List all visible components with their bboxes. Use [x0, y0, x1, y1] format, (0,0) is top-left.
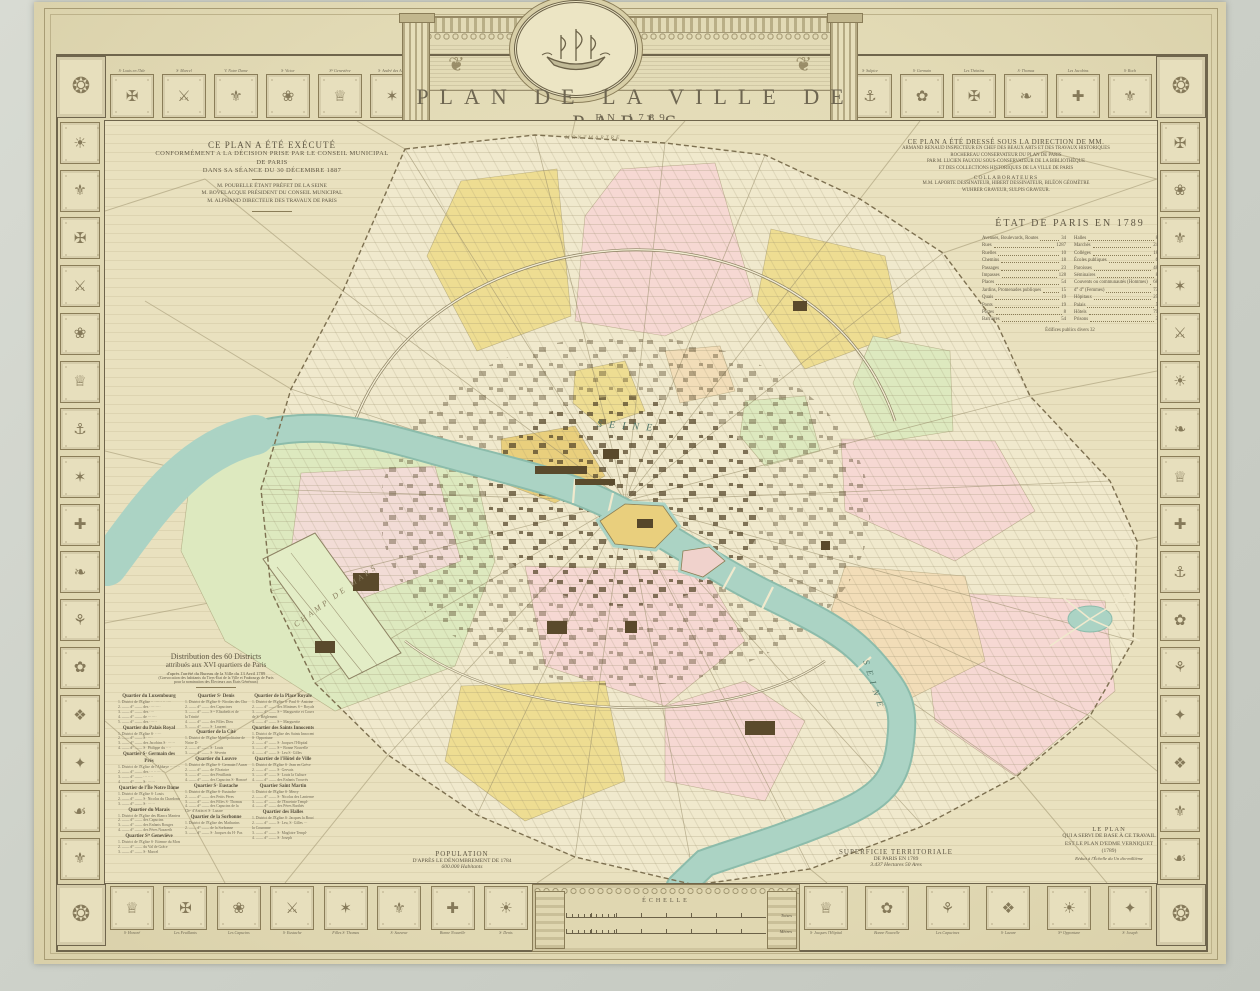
parish-label: S· Jacques l'Hôpital [810, 930, 842, 936]
heraldic-emblem-icon: ⚜ [392, 901, 405, 916]
heraldic-emblem-icon: ✠ [126, 89, 139, 104]
border-strip-bottom-left: ♕ S· Honoré ✠ Les Feuillants ❀ Les Capuc… [110, 886, 528, 944]
emblem-panel: ♕ [60, 361, 100, 403]
table-row: Ponts 19 [982, 302, 1066, 309]
heraldic-emblem-icon: ✶ [1174, 279, 1187, 294]
leader-dots [996, 279, 1059, 285]
row-value: 54 [1061, 316, 1066, 323]
row-label: Jardins, Promenades publiques [982, 287, 1041, 294]
note-line: M. POUBELLE ÉTANT PRÉFET DE LA SEINE [128, 183, 416, 191]
execution-note: CE PLAN A ÉTÉ EXÉCUTÉ CONFORMÉMENT A LA … [128, 140, 416, 215]
row-value: 8 [1064, 309, 1066, 316]
heraldic-emblem-icon: ⚔ [1173, 326, 1186, 341]
heraldic-emblem-icon: ❀ [282, 89, 295, 104]
divider [252, 179, 292, 180]
emblem-panel: ✦ [60, 742, 100, 784]
table-row: Marchés 24 [1074, 242, 1158, 249]
leader-dots [1109, 257, 1154, 263]
heraldic-emblem-icon: ✦ [74, 756, 87, 771]
note-line: QUI A SERVI DE BASE À CE TRAVAIL [1026, 833, 1192, 841]
row-label: Quais [982, 294, 993, 301]
row-label: Paroisses [1074, 265, 1092, 272]
emblem-panel: ✚ Bonne Nouvelle [431, 886, 475, 936]
leader-dots [998, 250, 1059, 256]
emblem-panel: ⚔ [60, 265, 100, 307]
emblem-panel: ✿ [60, 647, 100, 689]
border-strip-top-left: S· Louis en l'Isle ✠ S· Marcel ⚔ V. Notr… [110, 58, 414, 118]
scale-title: ÉCHELLE [533, 898, 799, 904]
emblem-panel: ☀ [60, 122, 100, 164]
row-label: Portes [982, 309, 994, 316]
quartier-line: Quartier des Saints Innocents [252, 725, 314, 732]
heraldic-emblem-icon: ✠ [74, 231, 87, 246]
leader-dots [1001, 257, 1059, 263]
rosette-icon: ❂ [1172, 904, 1190, 926]
row-value: 18 [1061, 257, 1066, 264]
emblem-panel: ⚓ [1160, 551, 1200, 593]
heraldic-emblem-icon: ❀ [1174, 183, 1187, 198]
emblem-panel: ✚ [1160, 504, 1200, 546]
row-label: Hôpitaux [1074, 294, 1092, 301]
row-value: 79 [1153, 309, 1158, 316]
emblem-panel: ♕ [1160, 456, 1200, 498]
population-note: POPULATION D'APRÈS LE DÉNOMBREMENT DE 17… [372, 850, 552, 870]
table-row: Rues 1287 [982, 242, 1066, 249]
row-value: 68 [1153, 279, 1158, 286]
column-base-right [767, 891, 797, 949]
corner-rosette-bottom-right: ❂ [1156, 884, 1206, 946]
scale-subdivisions [566, 914, 616, 917]
scale-plinth: ÉCHELLE Toises Mètres [532, 884, 800, 952]
emblem-panel: ☙ [60, 790, 100, 832]
table-column-right: Halles 8 Marchés 24 Collèges 18 Écoles p… [1074, 235, 1158, 324]
table-row: Couvents ou communautés (Hommes) 68 [1074, 279, 1158, 286]
row-label: Couvents ou communautés (Hommes) [1074, 279, 1148, 286]
border-strip-left: ☀⚜✠⚔❀♕⚓✶✚❧⚘✿❖✦☙⚜ [58, 122, 102, 880]
corner-rosette-bottom-left: ❂ [56, 884, 106, 946]
quartier-column-3: Quartier de la Place Royale1. District d… [252, 693, 314, 855]
heraldic-emblem-icon: ❀ [74, 326, 87, 341]
row-label: Ruelles [982, 250, 996, 257]
heraldic-emblem-icon: ♕ [73, 374, 86, 389]
parish-label: Sᵗᵉ Opportune [1058, 930, 1080, 936]
quartier-line: Quartier S· Eustache [185, 783, 247, 790]
quartier-line: Quartier Sᵗᵉ Geneviève [118, 833, 180, 840]
table-row: Barrières 54 [982, 316, 1066, 323]
emblem-panel: ❧ [60, 551, 100, 593]
parish-label: Les Capucins [228, 930, 250, 936]
heraldic-emblem-icon: ❖ [1002, 901, 1015, 916]
montmartre-label: MONTMARTRE [565, 135, 621, 141]
table-row: Hôtels 79 [1074, 309, 1158, 316]
heraldic-emblem-icon: ☀ [73, 136, 86, 151]
heraldic-emblem-icon: ⚜ [73, 183, 86, 198]
rosette-icon: ❂ [72, 76, 90, 98]
table-row: Collèges 18 [1074, 250, 1158, 257]
scale-bar-metres: Mètres [566, 925, 766, 934]
table-row: Places 54 [982, 279, 1066, 286]
quartier-line: Quartier S· Germain des Prés [118, 751, 180, 765]
row-value: 10 [1061, 250, 1066, 257]
column-base-left [535, 891, 565, 949]
heraldic-emblem-icon: ✶ [339, 901, 352, 916]
row-label: Chemins [982, 257, 999, 264]
emblem-panel: ❧ [1160, 408, 1200, 450]
notre-dame [637, 519, 653, 528]
table-row: Hôpitaux 25 [1074, 294, 1158, 301]
scale-bar-toises: Toises [566, 909, 766, 918]
dist-title: Distribution des 60 Districts [118, 652, 314, 661]
quartier-column-2: Quartier S· Denis1. District de l'Église… [185, 693, 247, 855]
note-line: M. ALPHAND DIRECTEUR DES TRAVAUX DE PARI… [128, 198, 416, 206]
scale-unit: Toises [781, 913, 792, 918]
emblem-panel: S· Louis en l'Isle ✠ [110, 68, 154, 118]
emblem-panel: ✚ [60, 504, 100, 546]
emblem-panel: ☀ Sᵗᵉ Opportune [1047, 886, 1091, 936]
note-line: DE PARIS [128, 159, 416, 168]
emblem-panel: ⚜ [1160, 217, 1200, 259]
emblem-panel: ❖ [1160, 742, 1200, 784]
quartier-line: 2. ―― d° ―― S· Nicolas des Lanternes [252, 795, 314, 800]
quartier-line: Quartier des Halles [252, 809, 314, 816]
row-label: Ponts [982, 302, 993, 309]
emblem-panel: V. Notre Dame ⚜ [214, 68, 258, 118]
leader-dots [995, 294, 1059, 300]
row-label: Halles [1074, 235, 1086, 242]
row-value: 18 [1153, 250, 1158, 257]
heraldic-emblem-icon: ✿ [881, 901, 894, 916]
row-value: 24 [1153, 242, 1158, 249]
corner-rosette-top-right: ❂ [1156, 56, 1206, 118]
parish-label: Les Capucines [936, 930, 959, 936]
heraldic-emblem-icon: ✚ [1072, 89, 1085, 104]
row-label: Places [982, 279, 994, 286]
heraldic-emblem-icon: ⚜ [1123, 89, 1136, 104]
ile-de-la-cite [600, 504, 677, 548]
heraldic-emblem-icon: ⚓ [1173, 565, 1186, 580]
table-row: Paroisses 48 [1074, 265, 1158, 272]
leader-dots [1097, 272, 1153, 278]
note-line: CONFORMÉMENT A LA DÉCISION PRISE PAR LE … [128, 150, 416, 159]
table-row: Halles 8 [1074, 235, 1158, 242]
heraldic-emblem-icon: ⚜ [229, 89, 242, 104]
table-row: Avenues, Boulevards, Routes 34 [982, 235, 1066, 242]
leader-dots [996, 309, 1062, 315]
heraldic-emblem-icon: ⚘ [73, 613, 86, 628]
table-row: Impasses 128 [982, 272, 1066, 279]
heraldic-emblem-icon: ✠ [1174, 136, 1187, 151]
heraldic-emblem-icon: ✚ [74, 517, 87, 532]
emblem-panel: ☀ [1160, 361, 1200, 403]
heraldic-emblem-icon: ✶ [74, 470, 87, 485]
heraldic-emblem-icon: ❖ [1173, 756, 1186, 771]
ship-of-paris-icon [537, 21, 615, 77]
table-column-left: Avenues, Boulevards, Routes 34 Rues 1287… [982, 235, 1066, 324]
row-label: Barrières [982, 316, 1000, 323]
heraldic-emblem-icon: ✦ [1174, 708, 1187, 723]
row-value: 54 [1061, 279, 1066, 286]
parish-label: S· Eustache [283, 930, 302, 936]
egg-and-dart-molding [533, 887, 799, 896]
row-label: Impasses [982, 272, 1000, 279]
emblem-panel: ⚓ [60, 408, 100, 450]
row-value: 15 [1061, 287, 1066, 294]
heraldic-emblem-icon: ♕ [333, 89, 346, 104]
leader-dots [1093, 250, 1151, 256]
emblem-panel: S· Germain ✿ [900, 68, 944, 118]
row-label: Prisons [1074, 316, 1088, 323]
table-row: Palais 5 [1074, 302, 1158, 309]
note-line: WUHRER GRAVEUR, SULPIS GRAVEUR. [856, 188, 1156, 195]
heraldic-emblem-icon: ✠ [968, 89, 981, 104]
leader-dots [1040, 235, 1059, 241]
row-label: Rues [982, 242, 992, 249]
heraldic-emblem-icon: ✿ [1174, 613, 1187, 628]
quartier-line: Quartier du Marais [118, 807, 180, 814]
heraldic-emblem-icon: ⚔ [73, 279, 86, 294]
row-label: Écoles publiques [1074, 257, 1107, 264]
row-label: Collèges [1074, 250, 1091, 257]
note-line: 600.000 Habitants [372, 864, 552, 870]
emblem-panel: ✿ Bonne Nouvelle [865, 886, 909, 936]
direction-note: CE PLAN A ÉTÉ DRESSÉ SOUS LA DIRECTION D… [856, 138, 1156, 195]
parish-label: Les Feuillants [174, 930, 197, 936]
heraldic-emblem-icon: ☙ [73, 804, 86, 819]
note-line: ARMAND RENAUD INSPECTEUR EN CHEF DES BEA… [856, 146, 1156, 153]
quartier-line: 4. ―― d° ―― des Enfants Trouvés [252, 778, 314, 783]
engraved-map-photo: { "colors":{"paper":"#e3dbb6","map_paper… [0, 0, 1260, 991]
emblem-panel: ⚜ [60, 838, 100, 880]
note-line: M. BOVELACQUE PRÉSIDENT DU CONSEIL MUNIC… [128, 190, 416, 198]
table-row: Portes 8 [982, 309, 1066, 316]
heraldic-emblem-icon: ♕ [1173, 470, 1186, 485]
rosette-icon: ❂ [1172, 76, 1190, 98]
heraldic-emblem-icon: ☀ [1173, 374, 1186, 389]
leader-dots [1087, 302, 1153, 308]
parish-label: Bonne Nouvelle [440, 930, 465, 936]
leader-dots [1001, 265, 1059, 271]
parish-label: S· Lazare [1001, 930, 1016, 936]
heraldic-emblem-icon: ✚ [1174, 517, 1187, 532]
table-row: Écoles publiques 6 [1074, 257, 1158, 264]
row-value: 8 [1156, 272, 1158, 279]
note-line: M.M. LAPORTE DESSINATEUR, HIBERT DESSINA… [856, 181, 1156, 188]
leader-dots [1089, 309, 1152, 315]
emblem-panel: ✠ [1160, 122, 1200, 164]
emblem-panel: Sᵗᵉ Geneviève ♕ [318, 68, 362, 118]
quartier-line: Quartier de l'Hôtel de Ville [252, 756, 314, 763]
note-line: PAR M. LUCIEN FAUCOU SOUS-CONSERVATEUR D… [856, 159, 1156, 166]
emblem-panel: Les Théatins ✠ [952, 68, 996, 118]
note-line: EST LE PLAN D'EDME VERNIQUET [1026, 841, 1192, 849]
leader-dots [994, 242, 1055, 248]
note-line: SUPERFICIE TERRITORIALE [806, 848, 986, 856]
emblem-panel: ⚘ [1160, 647, 1200, 689]
border-strip-bottom-right: ♕ S· Jacques l'Hôpital ✿ Bonne Nouvelle … [804, 886, 1152, 944]
emblem-panel: ✦ [1160, 695, 1200, 737]
row-value: 19 [1061, 302, 1066, 309]
heraldic-emblem-icon: ❀ [233, 901, 246, 916]
emblem-panel: ✠ [60, 217, 100, 259]
heraldic-emblem-icon: ✿ [916, 89, 929, 104]
emblem-panel: ⚜ S· Sauveur [377, 886, 421, 936]
heraldic-emblem-icon: ✠ [179, 901, 192, 916]
leader-dots [1002, 272, 1057, 278]
table-row: Chemins 18 [982, 257, 1066, 264]
scroll-ornament-icon: ❦ [795, 52, 812, 76]
row-value: 6 [1156, 257, 1158, 264]
emblem-panel: ⚔ [1160, 313, 1200, 355]
row-label: Hôtels [1074, 309, 1087, 316]
heraldic-emblem-icon: ❧ [1020, 89, 1033, 104]
quartier-line: Quartier du Palais Royal [118, 725, 180, 732]
emblem-panel: ✦ S· Joseph [1108, 886, 1152, 936]
leader-dots [1094, 294, 1151, 300]
table-title: ÉTAT DE PARIS EN 1789 [982, 218, 1158, 229]
row-label: Séminaires [1074, 272, 1095, 279]
quartier-line: Quartier du Louvre [185, 756, 247, 763]
quartier-line: Quartier de l'Île Notre Dame [118, 785, 180, 792]
emblem-panel: ♕ S· Jacques l'Hôpital [804, 886, 848, 936]
heraldic-emblem-icon: ✚ [446, 901, 459, 916]
emblem-panel: ❀ [60, 313, 100, 355]
etat-de-paris-table: ÉTAT DE PARIS EN 1789 Avenues, Boulevard… [982, 218, 1158, 333]
quartier-line: 4. ―― d° ―― S· Joseph [252, 836, 314, 841]
heraldic-emblem-icon: ⚘ [1173, 660, 1186, 675]
heraldic-emblem-icon: ⚔ [286, 901, 299, 916]
row-value: 19 [1061, 294, 1066, 301]
heraldic-emblem-icon: ✦ [1124, 901, 1137, 916]
row-value: 1287 [1056, 242, 1066, 249]
note-line: LE PLAN [1026, 826, 1192, 833]
quartier-line: Quartier de la Cité [185, 729, 247, 736]
divider [196, 687, 236, 688]
row-value: 73 [1153, 287, 1158, 294]
border-strip-top-right: S· Sulpice ⚓ S· Germain ✿ Les Théatins ✠… [848, 58, 1152, 118]
quartier-line: Quartier Saint Martin [252, 783, 314, 790]
leader-dots [1150, 279, 1152, 285]
row-label: Passages [982, 265, 999, 272]
heraldic-emblem-icon: ☀ [1062, 901, 1075, 916]
row-value: 5 [1156, 302, 1158, 309]
row-value: 25 [1153, 294, 1158, 301]
scroll-ornament-icon: ❦ [448, 52, 465, 76]
emblem-panel: ✠ Les Feuillants [163, 886, 207, 936]
emblem-panel: Les Jacobins ✚ [1056, 68, 1100, 118]
note-line: Réduit à l'Échelle du Un dix-millième [1026, 856, 1192, 861]
emblem-panel: ✶ [60, 456, 100, 498]
leader-dots [995, 302, 1060, 308]
heraldic-emblem-icon: ♕ [125, 901, 138, 916]
emblem-panel: ⚘ [60, 599, 100, 641]
table-row: Prisons 3 [1074, 316, 1158, 323]
heraldic-emblem-icon: ⚜ [73, 851, 86, 866]
quartier-line: Quartier S· Denis [185, 693, 247, 700]
superficie-note: SUPERFICIE TERRITORIALE DE PARIS EN 1789… [806, 848, 986, 868]
emblem-panel: ❖ [60, 695, 100, 737]
emblem-panel: ❀ Les Capucins [217, 886, 261, 936]
rosette-icon: ❂ [72, 904, 90, 926]
heraldic-emblem-icon: ⚜ [1173, 231, 1186, 246]
scale-subdivisions [566, 930, 616, 933]
quartier-line: 3. ―― d° ―― S· Marcel [118, 850, 180, 855]
emblem-panel: ⚔ S· Eustache [270, 886, 314, 936]
note-line: (1789) [1026, 848, 1192, 856]
note-line: DANS SA SÉANCE DU 30 DÉCEMBRE 1887 [128, 167, 416, 176]
dist-subtitle: pour la nomination des Électeurs aux Éta… [118, 680, 314, 684]
emblem-panel: S· Thomas ❧ [1004, 68, 1048, 118]
emblem-panel: S· Victor ❀ [266, 68, 310, 118]
emblem-panel: ⚜ [60, 170, 100, 212]
heraldic-emblem-icon: ☀ [499, 901, 512, 916]
emblem-panel: S· Marcel ⚔ [162, 68, 206, 118]
row-label: Palais [1074, 302, 1085, 309]
parish-label: S· Denis [499, 930, 512, 936]
parish-label: S· Honoré [124, 930, 140, 936]
divider [252, 211, 292, 212]
quartier-column-1: Quartier du Luxembourg1. District de l'É… [118, 693, 180, 855]
quartier-line: 3. ―― d° ―― S·ᵗᵉ Élisabeth et de [185, 710, 247, 715]
emblem-panel: ☀ S· Denis [484, 886, 528, 936]
parish-label: Bonne Nouvelle [874, 930, 899, 936]
emblem-panel: ❀ [1160, 170, 1200, 212]
table-row: d° d° (Femmes) 73 [1074, 287, 1158, 294]
emblem-panel: ✶ [1160, 265, 1200, 307]
quartier-line: 3. ―― d° ―― S· Jacques du H· Pas [185, 831, 247, 836]
note-line: CE PLAN A ÉTÉ DRESSÉ SOUS LA DIRECTION D… [856, 138, 1156, 146]
quartier-line: 2. ―― d° ―― S· Nicolas du Chardonnet [118, 797, 180, 802]
table-row: Quais 19 [982, 294, 1066, 301]
emblem-panel: ❖ S· Lazare [986, 886, 1030, 936]
row-value: 3 [1156, 316, 1158, 323]
heraldic-emblem-icon: ⚜ [1173, 804, 1186, 819]
heraldic-emblem-icon: ⚘ [941, 901, 954, 916]
row-value: 128 [1059, 272, 1066, 279]
dist-title: attribués aux XVI quartiers de Paris [118, 661, 314, 669]
leader-dots [1088, 235, 1153, 241]
leader-dots [1043, 287, 1059, 293]
leader-dots [1106, 287, 1151, 293]
row-label: d° d° (Femmes) [1074, 287, 1104, 294]
row-label: Marchés [1074, 242, 1091, 249]
border-strip-right: ✠❀⚜✶⚔☀❧♕✚⚓✿⚘✦❖⚜☙ [1158, 122, 1202, 880]
parish-label: S· Sauveur [391, 930, 408, 936]
note-line: POPULATION [372, 850, 552, 858]
table-row: Jardins, Promenades publiques 15 [982, 287, 1066, 294]
table-row: Passages 23 [982, 265, 1066, 272]
heraldic-emblem-icon: ⚔ [177, 89, 190, 104]
row-label: Avenues, Boulevards, Routes [982, 235, 1038, 242]
leader-dots [1002, 316, 1060, 322]
quartier-line: Quartier de la Place Royale [252, 693, 314, 700]
note-line: CE PLAN A ÉTÉ EXÉCUTÉ [128, 140, 416, 150]
note-line: ET DES COLLECTIONS HISTORIQUES DE LA VIL… [856, 166, 1156, 173]
emblem-panel: ⚘ Les Capucines [926, 886, 970, 936]
districts-distribution-list: Distribution des 60 Districts attribués … [118, 652, 314, 855]
base-plan-note: LE PLAN QUI A SERVI DE BASE À CE TRAVAIL… [1026, 826, 1192, 861]
heraldic-emblem-icon: ❖ [73, 708, 86, 723]
leader-dots [1093, 242, 1152, 248]
emblem-panel: ♕ S· Honoré [110, 886, 154, 936]
emblem-panel: ✶ Filles S· Thomas [324, 886, 368, 936]
emblem-panel: ✿ [1160, 599, 1200, 641]
row-value: 48 [1153, 265, 1158, 272]
emblem-panel: S· Roch ⚜ [1108, 68, 1152, 118]
note-line: 3.437 Hectares 50 Ares [806, 862, 986, 868]
parish-label: S· Joseph [1122, 930, 1137, 936]
corner-rosette-top-left: ❂ [56, 56, 106, 118]
heraldic-emblem-icon: ✿ [74, 660, 87, 675]
